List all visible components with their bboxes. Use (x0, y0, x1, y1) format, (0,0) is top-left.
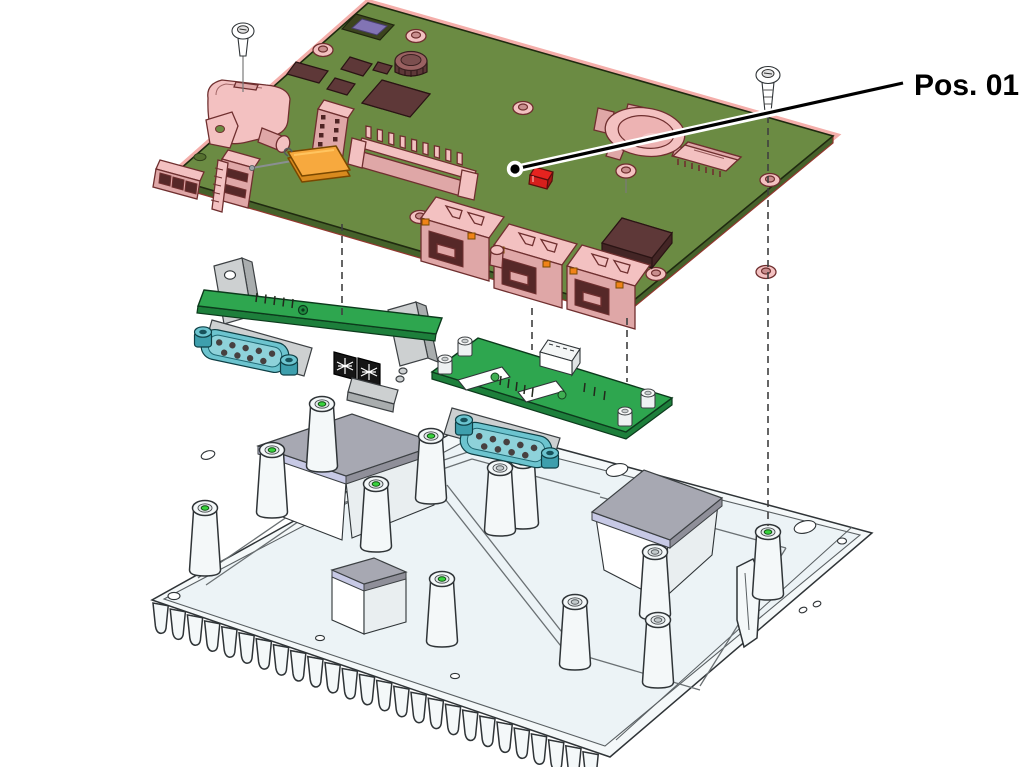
hex-standoff (618, 407, 632, 426)
db9-connector-left (195, 320, 313, 376)
buzzer-component (395, 52, 427, 78)
serial-daughterboard-left (195, 258, 443, 412)
exploded-assembly-diagram: Pos. 01 (0, 0, 1024, 767)
small-barrel-component (490, 246, 504, 269)
callout-label: Pos. 01 (914, 69, 1019, 102)
serial-daughterboard-right (432, 337, 672, 470)
hex-standoff (438, 355, 452, 374)
leader-dot (510, 164, 519, 173)
pcb-hole (194, 153, 206, 160)
hex-standoff (458, 337, 472, 356)
hex-standoff (641, 389, 655, 408)
thermal-pad-small (332, 558, 406, 634)
diagram-canvas: Pos. 01 (0, 0, 1024, 767)
screw-top-right (756, 67, 780, 113)
